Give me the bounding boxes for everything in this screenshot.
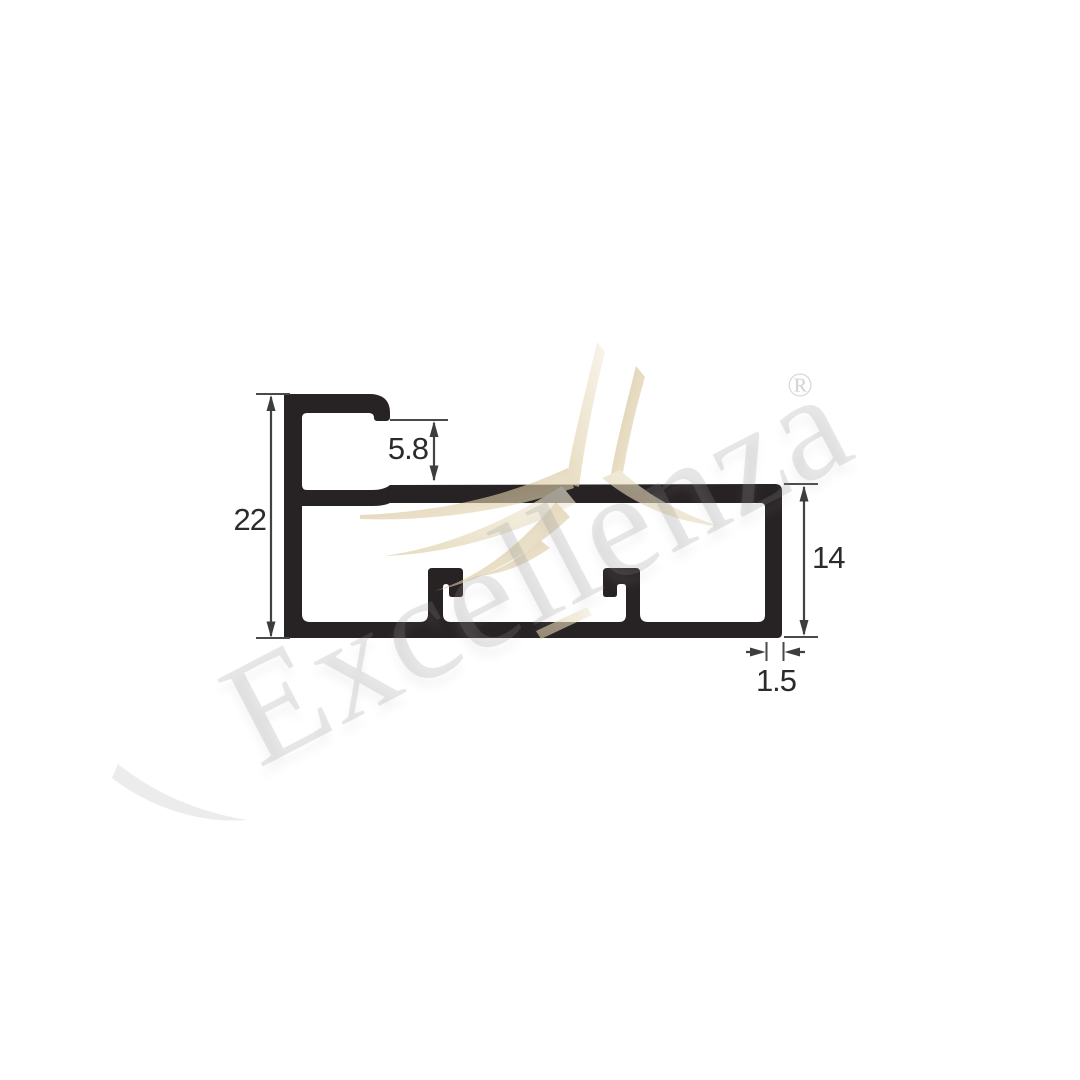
arrowhead-up-icon bbox=[267, 395, 276, 411]
registered-trademark-icon: ® bbox=[787, 367, 813, 404]
dim-label-box-height: 14 bbox=[812, 540, 845, 575]
profile-technical-drawing: 22 5.8 14 1.5 Excellenza bbox=[0, 0, 1080, 1080]
arrowhead-down-icon bbox=[800, 620, 809, 636]
dim-label-lip-offset: 5.8 bbox=[388, 431, 428, 466]
arrowhead-down-icon bbox=[430, 466, 439, 482]
dim-label-wall-thickness: 1.5 bbox=[756, 663, 796, 698]
dimension-wall-thickness: 1.5 bbox=[746, 642, 805, 698]
arrowhead-right-icon bbox=[750, 648, 766, 657]
arrowhead-left-icon bbox=[785, 648, 801, 657]
dim-label-overall-height: 22 bbox=[234, 502, 266, 537]
extension-line bbox=[767, 642, 784, 661]
arrowhead-up-icon bbox=[430, 421, 439, 437]
drawing-canvas: 22 5.8 14 1.5 Excellenza bbox=[0, 0, 1080, 1080]
dimension-lip-offset: 5.8 bbox=[388, 420, 448, 482]
wing-shadow-swirl bbox=[112, 764, 248, 821]
dimension-overall-height: 22 bbox=[234, 394, 290, 638]
